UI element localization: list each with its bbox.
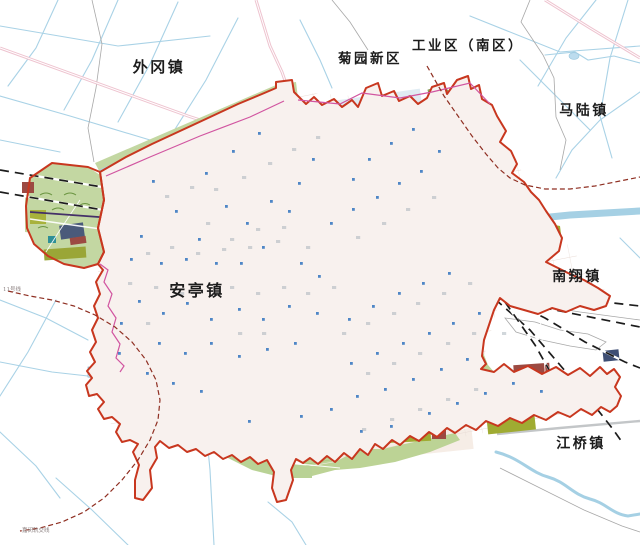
label-industrial-zone-south: 工业区（南区） [412,37,524,54]
water-dot [438,150,441,153]
water-dot [478,312,481,315]
water-dot [130,258,133,261]
water-dot [330,408,333,411]
tiny-label-mark [248,246,252,249]
tiny-label-mark [418,408,422,411]
tiny-label-mark [170,246,174,249]
water-dot [185,258,188,261]
water-dot [422,282,425,285]
water-dot [540,390,543,393]
planning-map: 外冈镇 菊园新区 工业区（南区） 马陆镇 南翔镇 安亭镇 江桥镇 11号线 嘉闵… [0,0,640,545]
label-waigang-town: 外冈镇 [132,58,186,76]
water-dot [248,420,251,423]
water-dot [198,238,201,241]
water-dot [440,368,443,371]
tiny-label-mark [446,398,450,401]
tiny-label-mark [306,292,310,295]
label-line-south: 嘉闵轨交线 [22,526,50,534]
water-dot [266,348,269,351]
tiny-label-mark [292,148,296,151]
tiny-label-mark [154,286,158,289]
water-dot [120,322,123,325]
tiny-label-mark [262,332,266,335]
water-dot [390,142,393,145]
tiny-label-mark [366,322,370,325]
water-dot [232,150,235,153]
water-dot [200,390,203,393]
tiny-label-mark [468,282,472,285]
tiny-label-mark [128,282,132,285]
label-jiangqiao-town: 江桥镇 [556,435,606,452]
water-dot [210,318,213,321]
water-dot [376,352,379,355]
label-malu-town: 马陆镇 [559,102,609,119]
tiny-label-mark [416,302,420,305]
tiny-label-mark [222,248,226,251]
water-dot [428,412,431,415]
tiny-label-mark [276,240,280,243]
water-dot [448,272,451,275]
label-juyuan-new-district: 菊园新区 [338,50,402,67]
water-dot [512,382,515,385]
water-dot [428,332,431,335]
tiny-label-mark [332,286,336,289]
water-dot [330,222,333,225]
planning-map-canvas: 外冈镇 菊园新区 工业区（南区） 马陆镇 南翔镇 安亭镇 江桥镇 11号线 嘉闵… [0,0,640,545]
water-dot [484,392,487,395]
tiny-label-mark [238,332,242,335]
tiny-label-mark [230,238,234,241]
tiny-label-mark [282,286,286,289]
water-dot [384,388,387,391]
tiny-label-mark [418,352,422,355]
water-dot [175,210,178,213]
tiny-label-mark [306,246,310,249]
tiny-label-mark [442,292,446,295]
tiny-label-mark [146,252,150,255]
water-dot [350,362,353,365]
tiny-label-mark [256,292,260,295]
tiny-label-mark [316,136,320,139]
water-dot [146,372,149,375]
water-dot [452,322,455,325]
tiny-label-mark [390,418,394,421]
water-dot [456,402,459,405]
water-dot [138,300,141,303]
water-dot [225,205,228,208]
water-dot [294,342,297,345]
tiny-label-mark [406,208,410,211]
tiny-label-mark [214,188,218,191]
water-dot [140,235,143,238]
water-dot [158,342,161,345]
water-dot [160,262,163,265]
water-dot [298,182,301,185]
label-anting-town: 安亭镇 [169,281,225,300]
tiny-label-mark [196,252,200,255]
tiny-label-mark [366,372,370,375]
label-nanxiang-town: 南翔镇 [552,268,602,285]
tiny-label-mark [356,236,360,239]
water-dot [312,158,315,161]
water-dot [172,382,175,385]
tiny-label-mark [190,186,194,189]
water-dot [288,305,291,308]
water-dot [352,178,355,181]
tiny-label-mark [474,388,478,391]
water-dot [352,208,355,211]
water-dot [262,246,265,249]
water-dot [215,262,218,265]
tiny-label-mark [282,226,286,229]
water-dot [258,132,261,135]
water-dot [412,128,415,131]
water-dot [186,302,189,305]
water-dot [300,415,303,418]
tiny-label-mark [446,342,450,345]
tiny-label-mark [382,222,386,225]
water-dot [376,196,379,199]
tiny-label-mark [242,176,246,179]
water-dot [300,262,303,265]
water-dot [288,210,291,213]
tiny-label-mark [362,428,366,431]
water-dot [118,352,121,355]
water-dot [270,200,273,203]
tiny-label-mark [342,332,346,335]
water-dot [348,318,351,321]
water-dot [184,352,187,355]
water-dot [262,318,265,321]
water-dot [246,222,249,225]
water-dot [372,305,375,308]
water-dot [412,378,415,381]
tiny-label-mark [392,312,396,315]
water-dot [402,342,405,345]
water-dot [356,395,359,398]
water-dot [205,172,208,175]
water-dot [368,158,371,161]
water-dot [238,308,241,311]
tiny-label-mark [432,196,436,199]
tiny-label-mark [256,228,260,231]
water-dot [398,292,401,295]
water-dot [210,342,213,345]
water-dot [316,312,319,315]
wusong-river [496,452,640,516]
tiny-label-mark [146,322,150,325]
water-dot [318,275,321,278]
water-dot [238,355,241,358]
tiny-label-mark [165,195,169,198]
water-dot [466,358,469,361]
water-dot [390,425,393,428]
tiny-label-mark [472,332,476,335]
water-dot [420,170,423,173]
tiny-label-mark [206,222,210,225]
tiny-label-mark [268,162,272,165]
tiny-label-mark [502,332,506,335]
tiny-label-mark [392,362,396,365]
planning-boundary [86,76,621,502]
water-dot [152,180,155,183]
water-dot [162,312,165,315]
label-line-west: 11号线 [3,285,21,293]
water-dot [240,262,243,265]
water-dot [398,182,401,185]
tiny-label-mark [230,286,234,289]
